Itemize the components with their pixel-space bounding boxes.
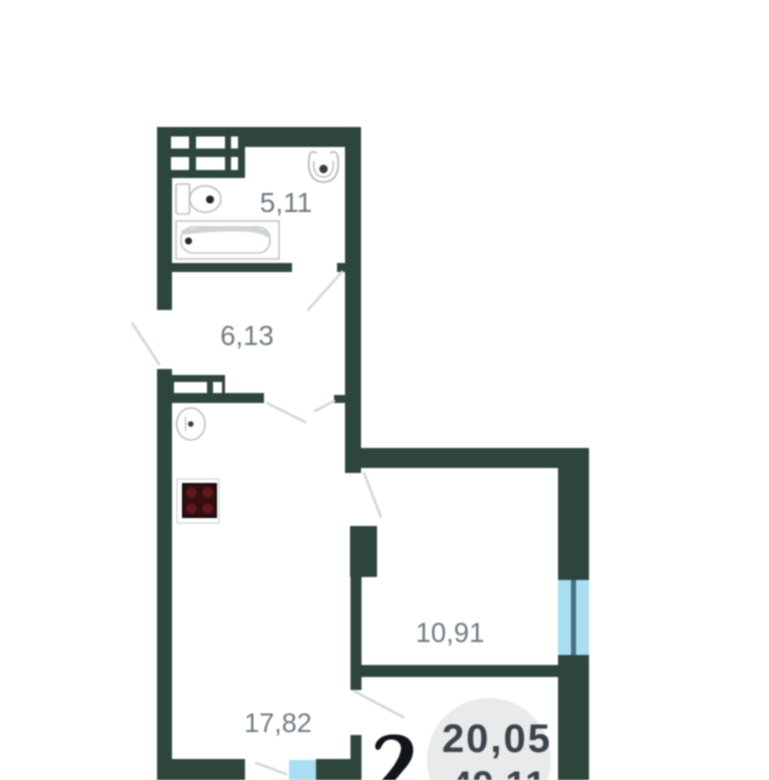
svg-text:20,05: 20,05 xyxy=(442,717,552,761)
svg-text:17,82: 17,82 xyxy=(244,708,312,738)
svg-text:10,91: 10,91 xyxy=(416,617,485,648)
svg-text:5,11: 5,11 xyxy=(260,187,312,218)
svg-text:6,13: 6,13 xyxy=(220,320,274,351)
svg-text:49,11: 49,11 xyxy=(451,764,547,780)
